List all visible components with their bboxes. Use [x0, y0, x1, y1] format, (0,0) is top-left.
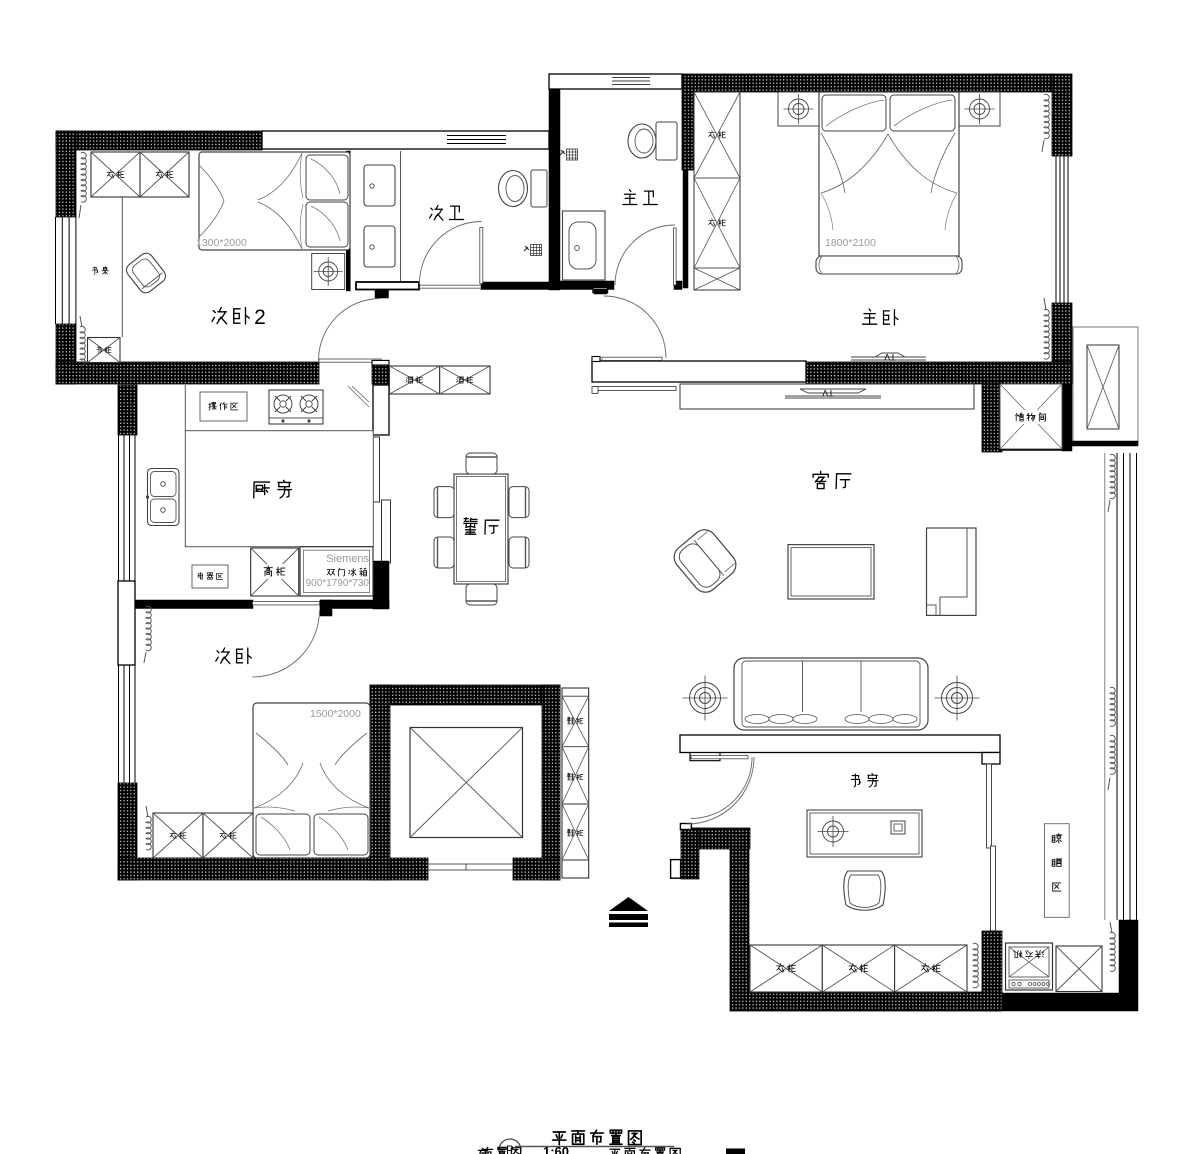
svg-text:1500*2000: 1500*2000	[310, 708, 361, 720]
svg-text:Siemens: Siemens	[326, 553, 369, 565]
svg-text:TV: TV	[884, 352, 896, 362]
svg-text:1300*2000: 1300*2000	[196, 237, 247, 249]
svg-text:P: P	[506, 1143, 514, 1154]
svg-text:900*1790*730: 900*1790*730	[306, 578, 370, 589]
svg-text:TV: TV	[822, 388, 834, 398]
svg-text:1:60: 1:60	[543, 1144, 569, 1154]
svg-text:1800*2100: 1800*2100	[825, 237, 876, 249]
svg-text:2: 2	[254, 306, 266, 329]
